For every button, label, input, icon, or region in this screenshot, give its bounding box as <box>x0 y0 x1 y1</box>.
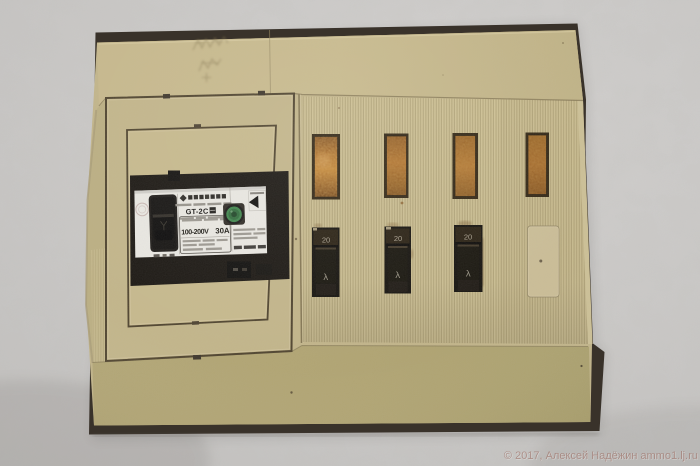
svg-text:© 2017, Алексей Надёжин ammo1.: © 2017, Алексей Надёжин ammo1.lj.ru <box>504 450 698 462</box>
